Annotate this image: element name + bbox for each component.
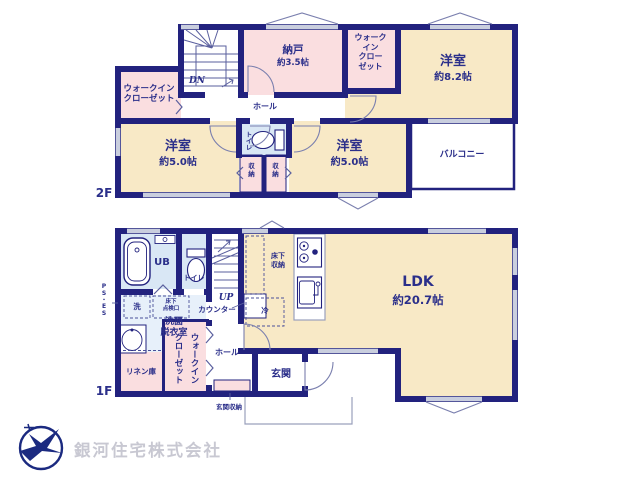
entrance-door [305, 362, 333, 390]
stairs-down-2f [184, 30, 238, 87]
company-logo [20, 424, 62, 469]
washbasin-icon [119, 325, 146, 353]
porch-outline [245, 397, 352, 424]
room-closet-a [240, 155, 262, 192]
floor-2f-rooms [118, 27, 515, 195]
vanity-icon [155, 236, 175, 244]
stairs-up-1f [212, 240, 240, 288]
room-wic-left [118, 69, 181, 121]
kitchen-sink-icon [298, 277, 322, 308]
room-entrance-storage [214, 380, 250, 391]
closet-divider-wall [262, 155, 266, 192]
stove-icon [298, 238, 322, 267]
room-wic-top [345, 27, 395, 91]
floor-plan-page: 2F ウォークイン クローゼット DN 納戸 約3.5帖 ウォーク イン クロー… [0, 0, 640, 480]
room-linen [121, 352, 162, 391]
room-ldk-south [401, 348, 512, 396]
balcony-outline [411, 124, 514, 189]
room-storage [241, 27, 345, 95]
room-ldk-main [244, 234, 512, 348]
room-closet-b [266, 155, 286, 192]
room-wic-1f [165, 322, 206, 391]
bathtub-icon [124, 238, 150, 285]
room-bedroom-5-left [118, 121, 239, 195]
floor-plan-drawing [0, 0, 640, 480]
room-bedroom-5-right [289, 121, 409, 195]
toilet-icon-2f [252, 130, 284, 150]
toilet-icon-1f [187, 249, 205, 282]
